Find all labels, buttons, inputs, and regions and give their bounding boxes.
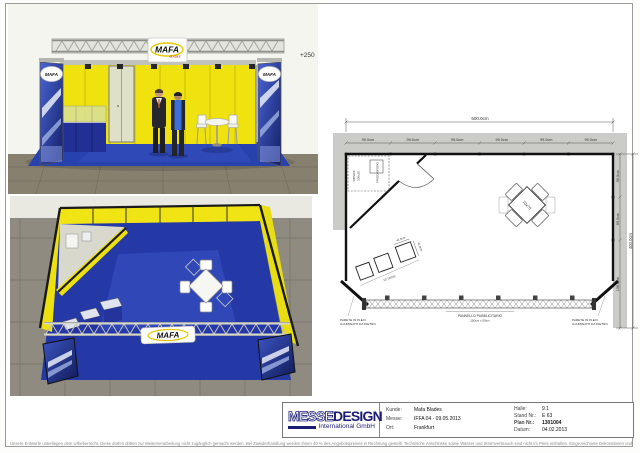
title-block-fields: Kunde: Mafa Blades Messe: IFFA 04 - 09.0… — [380, 403, 638, 437]
svg-text:42.0cm: 42.0cm — [396, 235, 407, 242]
field-stand-label: Stand Nr.: — [514, 414, 542, 420]
field-datum-label: Datum: — [514, 428, 542, 434]
right-graphic-tower: MAFA — [257, 58, 282, 166]
wall-posts — [345, 153, 615, 242]
field-kunde: Kunde: Mafa Blades — [386, 408, 514, 414]
field-plan: Plan Nr.: 1301004 — [514, 421, 632, 427]
height-annotation: +250 — [300, 52, 315, 59]
stand-walls — [341, 154, 618, 305]
door-swing — [399, 164, 434, 188]
svg-text:99.0cm: 99.0cm — [616, 170, 620, 182]
left-tower-logo-text: MAFA — [45, 72, 58, 77]
top-banner: MAFA — [141, 326, 196, 344]
front-sign-logo-sub: BLADES — [169, 55, 180, 59]
logo-subtitle: International GmbH — [319, 424, 375, 431]
field-plan-label: Plan Nr.: — [514, 421, 542, 427]
svg-text:99.0cm: 99.0cm — [406, 138, 418, 142]
svg-text:99.0cm: 99.0cm — [495, 138, 507, 142]
svg-text:99.0cm: 99.0cm — [616, 213, 620, 225]
field-halle-value: 9.1 — [542, 407, 549, 413]
title-block: MESSEDESIGN International GmbH Kunde: Ma… — [282, 402, 634, 438]
floor-plan: 600.0cm 99.0cm 99.0cm 99.0cm 99.0cm 99.0… — [330, 112, 640, 352]
svg-text:FRIGORIFERO: FRIGORIFERO — [376, 162, 380, 183]
title-block-right-column: Halle: 9.1 Stand Nr.: E 63 Plan Nr.: 130… — [514, 406, 632, 434]
field-halle: Halle: 9.1 — [514, 407, 632, 413]
title-block-left-column: Kunde: Mafa Blades Messe: IFFA 04 - 09.0… — [386, 406, 514, 434]
field-messe-label: Messe: — [386, 417, 414, 423]
door — [109, 66, 134, 142]
logo-text-design: DESIGN — [333, 409, 382, 423]
storage-room: RIPIANI 100x30 FRIGORIFERO — [348, 156, 389, 191]
svg-text:99.0cm: 99.0cm — [584, 138, 596, 142]
svg-text:PANNELLO PUBBLICITARIO: PANNELLO PUBBLICITARIO — [458, 314, 503, 318]
svg-text:99.0cm: 99.0cm — [540, 138, 552, 142]
booth-logo-sign: MAFA BLADES — [148, 38, 187, 62]
front-sign-logo-text: MAFA — [155, 45, 179, 55]
left-graphic-tower: MAFA — [39, 58, 64, 166]
svg-text:400.0cm: 400.0cm — [628, 232, 633, 249]
svg-text:ILLUMINATO DA DIETRO: ILLUMINATO DA DIETRO — [572, 322, 608, 326]
field-plan-value: 1301004 — [542, 421, 561, 427]
top-corner-tower-left — [43, 338, 78, 384]
right-tower-logo-text: MAFA — [263, 72, 276, 77]
svg-text:600.0cm: 600.0cm — [471, 116, 489, 121]
logo-text-messe: MESSE — [288, 409, 333, 423]
top-corner-tower-right — [258, 334, 295, 380]
front-view-rendering: MAFA BLADES MAFA MAFA — [8, 4, 318, 194]
svg-text:99.0cm: 99.0cm — [451, 138, 463, 142]
field-ort-label: Ort: — [386, 426, 414, 432]
svg-text:100cm x 50cm: 100cm x 50cm — [470, 319, 490, 323]
field-ort: Ort: Frankfurt — [386, 426, 514, 432]
field-messe: Messe: IFFA 04 - 09.05.2013 — [386, 417, 514, 423]
panel-label: PANNELLO PUBBLICITARIO 100cm x 50cm — [446, 312, 514, 323]
svg-text:100x30: 100x30 — [357, 171, 361, 181]
field-datum: Datum: 04.02.2013 — [514, 428, 632, 434]
top-view-rendering: MAFA — [8, 194, 314, 398]
top-back-wall — [60, 205, 260, 224]
field-messe-value: IFFA 04 - 09.05.2013 — [414, 417, 461, 423]
field-halle-label: Halle: — [514, 407, 542, 413]
field-kunde-label: Kunde: — [386, 408, 414, 414]
svg-text:42.0cm: 42.0cm — [417, 242, 424, 253]
field-stand: Stand Nr.: E 63 — [514, 414, 632, 420]
logo-underline-bar — [288, 426, 316, 429]
footer-disclaimer: Unsere Entwürfe unterliegen dem Urheberr… — [10, 441, 632, 446]
svg-text:ILLUMINATO DA DIETRO: ILLUMINATO DA DIETRO — [340, 322, 376, 326]
field-kunde-value: Mafa Blades — [414, 408, 442, 414]
field-datum-value: 04.02.2013 — [542, 428, 567, 434]
display-cases — [62, 106, 106, 152]
plan-vitrines: 42.0cm 42.0cm VETRINE — [349, 231, 429, 290]
top-banner-logo-text: MAFA — [157, 330, 180, 340]
plan-table: 70x70 — [491, 169, 563, 241]
plan-truss — [362, 296, 596, 311]
company-logo: MESSEDESIGN International GmbH — [283, 403, 380, 437]
field-stand-value: E 63 — [542, 414, 552, 420]
svg-text:99.0cm: 99.0cm — [362, 138, 374, 142]
svg-text:RIPIANI: RIPIANI — [352, 170, 356, 181]
field-ort-value: Frankfurt — [414, 426, 434, 432]
